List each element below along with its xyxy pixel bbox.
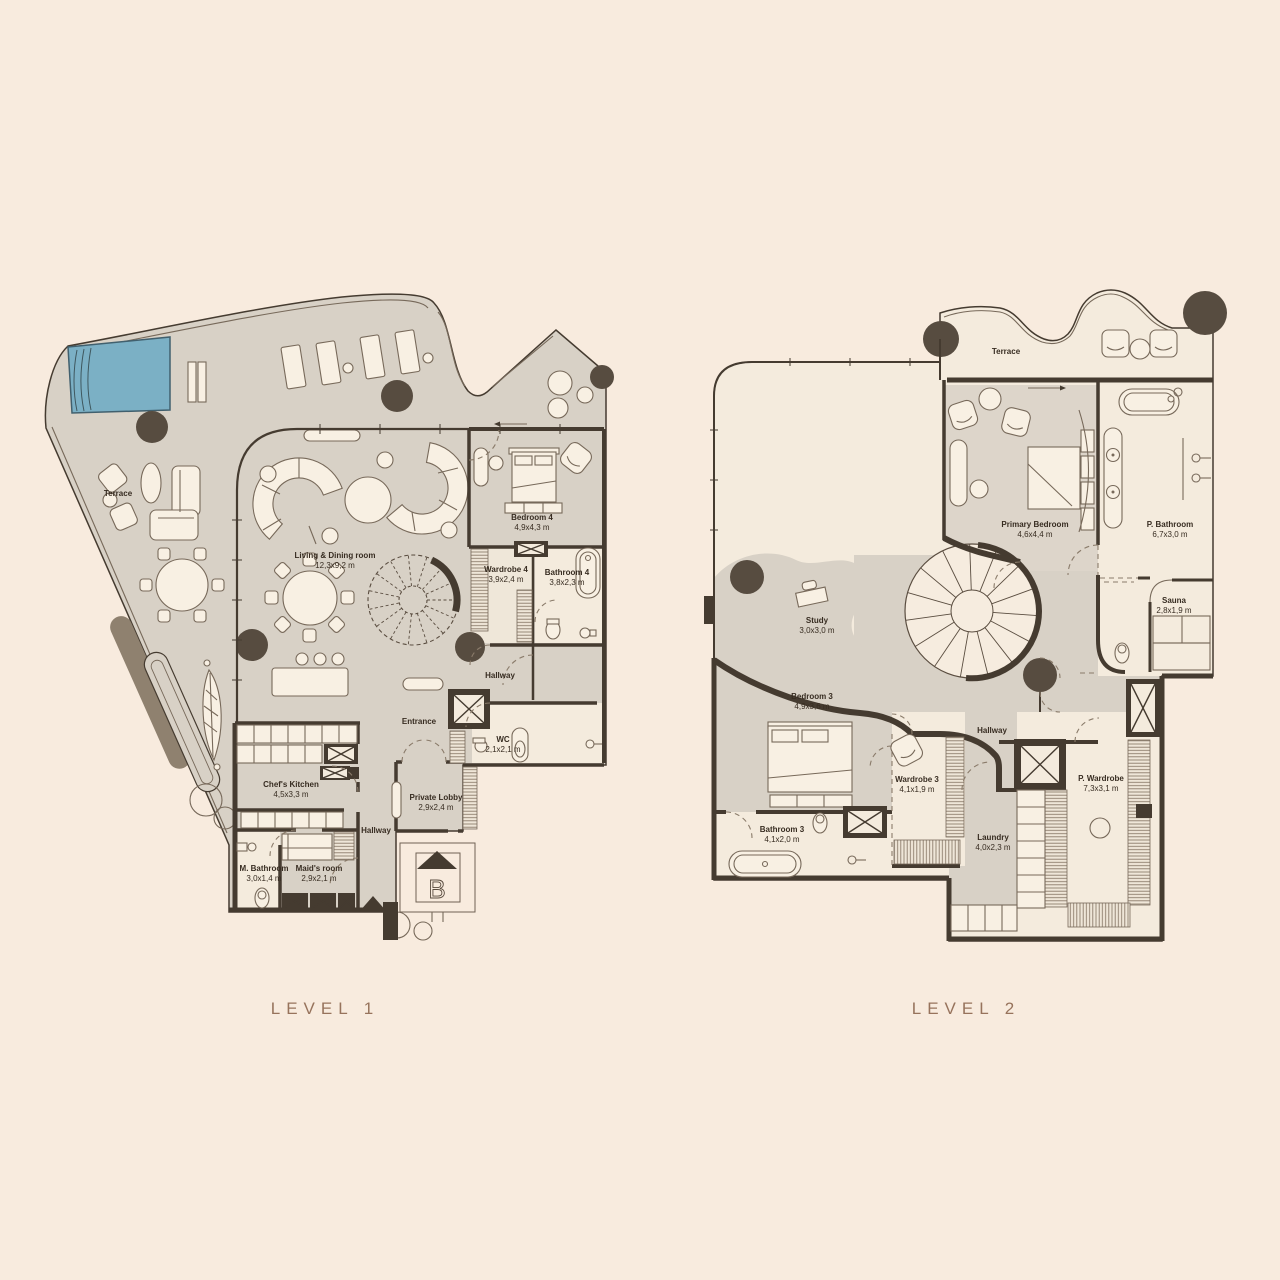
pwardrobe-closet (1128, 740, 1150, 905)
room-dims-bathroom3: 4,1x2,0 m (764, 835, 799, 844)
wardrobe4-closet (471, 549, 488, 631)
room-dims-laundry: 4,0x2,3 m (975, 843, 1010, 852)
room-label-hallway2: Hallway (361, 826, 391, 835)
wardrobe4-closet (517, 590, 532, 642)
room-dims-bedroom3: 4,9x3,6 m (794, 702, 829, 711)
kitchen-shafts (320, 744, 359, 780)
pwardrobe-closet (1068, 903, 1130, 927)
shaft-right (1126, 679, 1160, 737)
shaft-hatch (450, 731, 465, 763)
b-marker: B (428, 874, 445, 904)
room-label-bedroom3: Bedroom 3 (791, 692, 833, 701)
column (236, 629, 268, 661)
plant (414, 922, 432, 940)
room-label-sauna: Sauna (1162, 596, 1187, 605)
kitchen-island (272, 668, 348, 696)
shaft-hatch (463, 767, 477, 829)
room-dims-primary: 4,6x4,4 m (1017, 530, 1052, 539)
room-dims-lobby: 2,9x2,4 m (418, 803, 453, 812)
room-label-maid: Maid's room (296, 864, 343, 873)
console (304, 430, 360, 441)
level2-plan: Terrace Primary Bedroom 4,6x4,4 m P. Bat… (704, 290, 1227, 941)
room-dims-bathroom4: 3,8x2,3 m (549, 578, 584, 587)
room-label-kitchen: Chef's Kitchen (263, 780, 319, 789)
room-label-wardrobe4: Wardrobe 4 (484, 565, 528, 574)
room-label-mbathroom: M. Bathroom (240, 864, 289, 873)
column (590, 365, 614, 389)
wc-floor (472, 703, 602, 763)
room-dims-maid: 2,9x2,1 m (301, 874, 336, 883)
room-label-wardrobe3: Wardrobe 3 (895, 775, 939, 784)
stool (296, 653, 308, 665)
room-label-hallway1: Hallway (485, 671, 515, 680)
pool (68, 337, 170, 413)
room-label-bathroom3: Bathroom 3 (760, 825, 805, 834)
room-label-living: Living & Dining room (295, 551, 376, 560)
room-dims-mbathroom: 3,0x1,4 m (246, 874, 281, 883)
room-label-pwardrobe: P. Wardrobe (1078, 774, 1124, 783)
level1-plan: B Terrace (45, 294, 614, 940)
stool (314, 653, 326, 665)
floorplan-page: B Terrace (0, 0, 1280, 1280)
deck-slat (188, 362, 196, 402)
floorplan-canvas: B Terrace (0, 0, 1280, 1280)
room-label-hallway3: Hallway (977, 726, 1007, 735)
room-label-primary: Primary Bedroom (1001, 520, 1068, 529)
room-label-bathroom4: Bathroom 4 (545, 568, 590, 577)
bench (403, 678, 443, 690)
wall-stub (383, 902, 398, 940)
wardrobe3-closet (946, 737, 964, 837)
elevator-shaft (448, 689, 490, 729)
room-dims-wardrobe3: 4,1x1,9 m (899, 785, 934, 794)
level1-title: LEVEL 1 (271, 999, 379, 1018)
room-dims-wc: 2,1x2,1 m (485, 745, 520, 754)
room-label-wc: WC (496, 735, 510, 744)
elevator2-shaft (1014, 739, 1066, 790)
pwardrobe-closet (1045, 790, 1067, 907)
room-dims-pbathroom: 6,7x3,0 m (1152, 530, 1187, 539)
column (136, 411, 168, 443)
room-dims-wardrobe4: 3,9x2,4 m (488, 575, 523, 584)
coffee-table (345, 477, 391, 523)
room-label-bedroom4: Bedroom 4 (511, 513, 553, 522)
room-label-study: Study (806, 616, 829, 625)
plant (548, 371, 572, 395)
room-dims-sauna: 2,8x1,9 m (1156, 606, 1191, 615)
plant (577, 387, 593, 403)
room-dims-study: 3,0x3,0 m (799, 626, 834, 635)
room-label-terrace2: Terrace (992, 347, 1021, 356)
room-label-laundry: Laundry (977, 833, 1009, 842)
wardrobe4-shaft (514, 541, 548, 557)
column (730, 560, 764, 594)
room-dims-kitchen: 4,5x3,3 m (273, 790, 308, 799)
column (1183, 291, 1227, 335)
lobby-door (392, 782, 401, 818)
room-label-entrance: Entrance (402, 717, 437, 726)
plant (548, 398, 568, 418)
column (1023, 658, 1057, 692)
deck-slat (198, 362, 206, 402)
room-dims-pwardrobe: 7,3x3,1 m (1083, 784, 1118, 793)
room-label-lobby: Private Lobby (410, 793, 463, 802)
b-elevator: B (400, 843, 475, 922)
room-label-pbathroom: P. Bathroom (1147, 520, 1194, 529)
wall-handle (704, 596, 713, 624)
small-shaft (1136, 804, 1152, 818)
stool (332, 653, 344, 665)
level2-title: LEVEL 2 (912, 999, 1020, 1018)
room-label-terrace1: Terrace (104, 489, 133, 498)
room-dims-bedroom4: 4,9x4,3 m (514, 523, 549, 532)
room-dims-living: 12,3x9,2 m (315, 561, 355, 570)
column (381, 380, 413, 412)
wardrobe3-closet (894, 840, 960, 864)
